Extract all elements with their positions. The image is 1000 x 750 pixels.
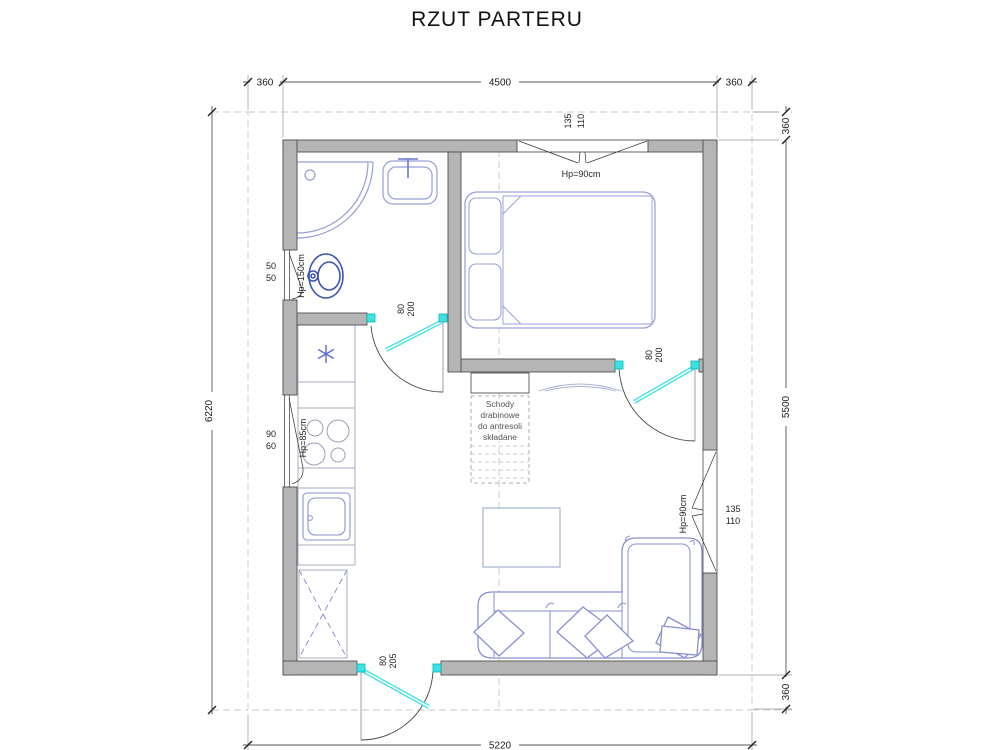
door-post	[439, 314, 447, 322]
ladder-note-line3: do antresoli	[478, 421, 522, 431]
door-entrance-height-label: 205	[388, 653, 398, 668]
wall-top-left	[283, 140, 517, 152]
wall-left-3	[283, 487, 297, 675]
pillow	[469, 198, 501, 254]
page-title: RZUT PARTERU	[411, 8, 583, 31]
ladder-note-line2: drabinowe	[480, 410, 519, 420]
counter-segment	[298, 382, 355, 408]
wall-left-1	[283, 140, 297, 250]
window-kitchen-sill-label: Hp=85cm	[298, 419, 308, 458]
door-post	[615, 361, 623, 369]
wall-interior-vertical	[448, 152, 461, 372]
door-bathroom-width-label: 80	[396, 304, 406, 314]
wall-bedroom-south	[461, 359, 615, 372]
window-living-width-label: 135	[725, 504, 740, 514]
window-bathroom-sill-label: Hp=150cm	[296, 254, 306, 298]
window-living-height-label: 110	[726, 516, 740, 526]
wall-bedroom-south-stub	[699, 359, 703, 372]
bed	[465, 192, 655, 328]
dim-right-bottom-label: 360	[781, 683, 792, 700]
window-kitchen-height-label: 60	[266, 441, 276, 451]
counter-segment	[298, 545, 355, 565]
dim-right-mid-label: 5500	[781, 395, 792, 418]
ladder-note-line1: Schody	[486, 399, 515, 409]
door-bedroom-width-label: 80	[644, 350, 654, 360]
door-entrance-width-label: 80	[378, 656, 388, 666]
dim-left-label: 6220	[204, 399, 215, 422]
fridge	[298, 325, 355, 382]
dim-right-top-label: 360	[781, 117, 792, 134]
pillow	[469, 264, 501, 320]
pillow	[660, 626, 699, 655]
wardrobe	[299, 570, 347, 658]
floor-plan-page: Schody drabinowe do antresoli składane	[0, 0, 1000, 750]
window-kitchen-width-label: 90	[266, 429, 276, 439]
wall-bathroom-south	[297, 313, 367, 325]
coffee-table	[483, 508, 560, 567]
kitchen-sink	[298, 488, 355, 545]
window-bedroom-width-label: 135	[563, 113, 573, 128]
dim-top-mid-label: 4500	[489, 78, 512, 89]
kitchen-block	[298, 325, 355, 658]
window-bathroom-width-label: 50	[266, 261, 276, 271]
counter-segment	[298, 468, 355, 488]
dim-bottom-label: 5220	[489, 741, 512, 750]
window-living-sill-label: Hp=90cm	[678, 495, 688, 534]
door-bathroom-height-label: 200	[406, 301, 416, 316]
door-post	[357, 664, 365, 672]
window-bedroom-sill-label: Hp=90cm	[562, 169, 601, 179]
wall-right-1	[703, 140, 717, 450]
dim-top-right-label: 360	[726, 78, 743, 89]
dim-top-left-label: 360	[257, 78, 274, 89]
window-bedroom-height-label: 110	[576, 114, 586, 128]
door-post	[367, 314, 375, 322]
door-bedroom-height-label: 200	[654, 347, 664, 362]
ladder-note-line4: składane	[483, 432, 517, 442]
wall-bottom-right	[441, 661, 717, 675]
bathroom-sink	[383, 159, 437, 204]
door-post	[433, 664, 441, 672]
wall-right-2	[703, 573, 717, 675]
wall-bottom-left	[283, 661, 357, 675]
wall-left-2	[283, 300, 297, 395]
floor-plan-drawing: Schody drabinowe do antresoli składane	[0, 0, 1000, 750]
window-bathroom-height-label: 50	[266, 273, 276, 283]
mezzanine-hatch	[471, 373, 529, 393]
door-post	[691, 361, 699, 369]
